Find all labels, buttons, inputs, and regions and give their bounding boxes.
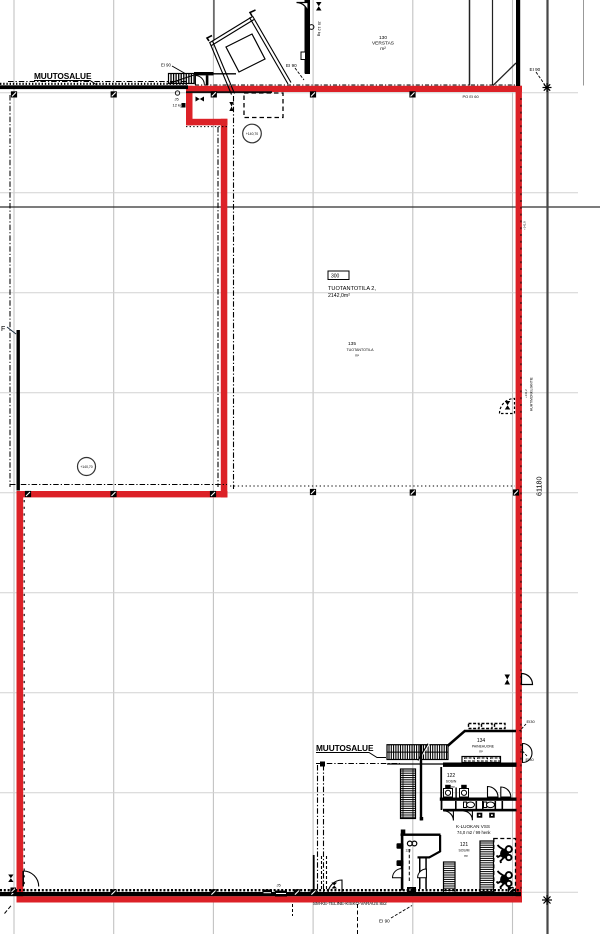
svg-text:TUOTANTOTILA 2,: TUOTANTOTILA 2,: [328, 286, 376, 292]
svg-text:PO EI 60: PO EI 60: [463, 94, 480, 99]
svg-text:122: 122: [447, 773, 456, 779]
svg-text:135: 135: [348, 341, 356, 347]
svg-text:m²: m²: [464, 854, 468, 858]
svg-text:2142,0m²: 2142,0m²: [328, 293, 350, 299]
svg-text:+140,70: +140,70: [246, 132, 258, 136]
svg-text:SOS/M: SOS/M: [459, 849, 470, 853]
svg-text:SOS/N: SOS/N: [446, 780, 457, 784]
svg-text:SM-KE-TELINE-KISKO-VARAUS 8x2: SM-KE-TELINE-KISKO-VARAUS 8x2: [313, 901, 387, 906]
svg-text:+140,70: +140,70: [80, 465, 92, 469]
svg-text:EI30: EI30: [526, 757, 535, 762]
svg-text:J5 12 kg: J5 12 kg: [317, 21, 322, 36]
svg-text:VERSTAS: VERSTAS: [372, 41, 394, 47]
svg-text:+141,2: +141,2: [524, 389, 528, 398]
svg-text:134: 134: [477, 738, 486, 744]
svg-text:EI 90: EI 90: [161, 63, 171, 68]
svg-text:61180: 61180: [535, 477, 544, 496]
svg-text:120: 120: [406, 849, 412, 853]
svg-text:130: 130: [379, 35, 387, 41]
svg-text:m²: m²: [479, 750, 483, 754]
svg-text:300: 300: [331, 274, 340, 280]
svg-text:12 kg: 12 kg: [173, 103, 183, 108]
svg-text:121: 121: [460, 842, 469, 848]
svg-text:MUUTOSALUE: MUUTOSALUE: [316, 743, 374, 753]
svg-text:EI 90: EI 90: [286, 63, 297, 68]
svg-text:TUOTANTOTILA: TUOTANTOTILA: [346, 348, 374, 352]
svg-text:+141,9: +141,9: [523, 221, 527, 230]
svg-text:EI30: EI30: [527, 719, 536, 724]
svg-text:74,0 m2 / 99 henk: 74,0 m2 / 99 henk: [457, 830, 491, 835]
svg-text:F: F: [1, 326, 5, 333]
svg-text:EI 90: EI 90: [530, 67, 541, 72]
svg-text:HUHTIMONKUJANTIE: HUHTIMONKUJANTIE: [530, 376, 534, 411]
svg-text:m²: m²: [380, 46, 386, 52]
svg-text:PAINEHUONE: PAINEHUONE: [472, 745, 495, 749]
svg-text:MUUTOSALUE: MUUTOSALUE: [34, 71, 92, 81]
svg-text:EI 90: EI 90: [379, 919, 390, 924]
svg-text:K-LUOKAN VSS: K-LUOKAN VSS: [456, 824, 490, 829]
